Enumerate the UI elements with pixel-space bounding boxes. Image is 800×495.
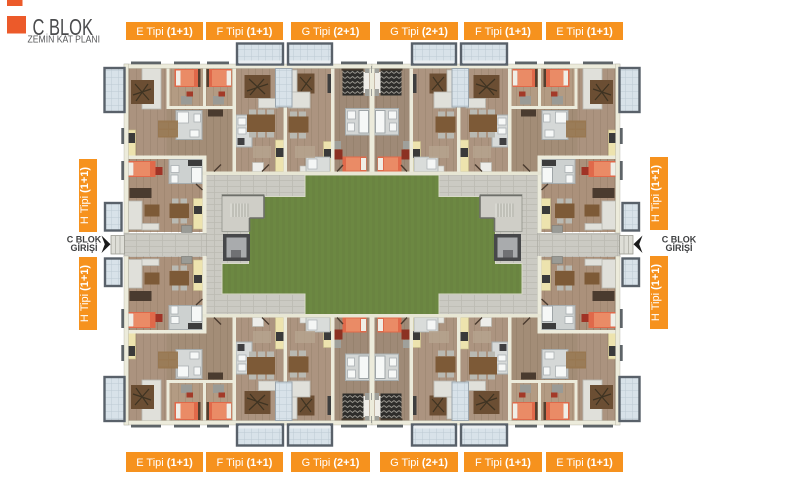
svg-text:H Tipi (1+1): H Tipi (1+1): [650, 165, 662, 223]
svg-text:H Tipi (1+1): H Tipi (1+1): [79, 167, 91, 225]
svg-text:E Tipi (1+1): E Tipi (1+1): [136, 26, 193, 38]
svg-text:GİRİŞİ: GİRİŞİ: [665, 243, 692, 253]
svg-text:G Tipi (2+1): G Tipi (2+1): [302, 457, 360, 469]
svg-text:G Tipi (2+1): G Tipi (2+1): [390, 26, 448, 38]
svg-text:ZEMİN KAT PLANI: ZEMİN KAT PLANI: [28, 35, 101, 46]
svg-text:F Tipi (1+1): F Tipi (1+1): [217, 457, 273, 469]
svg-text:G Tipi (2+1): G Tipi (2+1): [390, 457, 448, 469]
svg-text:E Tipi (1+1): E Tipi (1+1): [556, 457, 613, 469]
svg-text:G Tipi (2+1): G Tipi (2+1): [302, 26, 360, 38]
svg-text:H Tipi (1+1): H Tipi (1+1): [79, 265, 91, 323]
svg-text:E Tipi (1+1): E Tipi (1+1): [136, 457, 193, 469]
svg-text:E Tipi (1+1): E Tipi (1+1): [556, 26, 613, 38]
svg-text:F Tipi (1+1): F Tipi (1+1): [475, 457, 531, 469]
svg-text:GİRİŞİ: GİRİŞİ: [70, 243, 97, 253]
svg-text:H Tipi (1+1): H Tipi (1+1): [650, 264, 662, 322]
svg-text:F Tipi (1+1): F Tipi (1+1): [217, 26, 273, 38]
svg-text:F Tipi (1+1): F Tipi (1+1): [475, 26, 531, 38]
